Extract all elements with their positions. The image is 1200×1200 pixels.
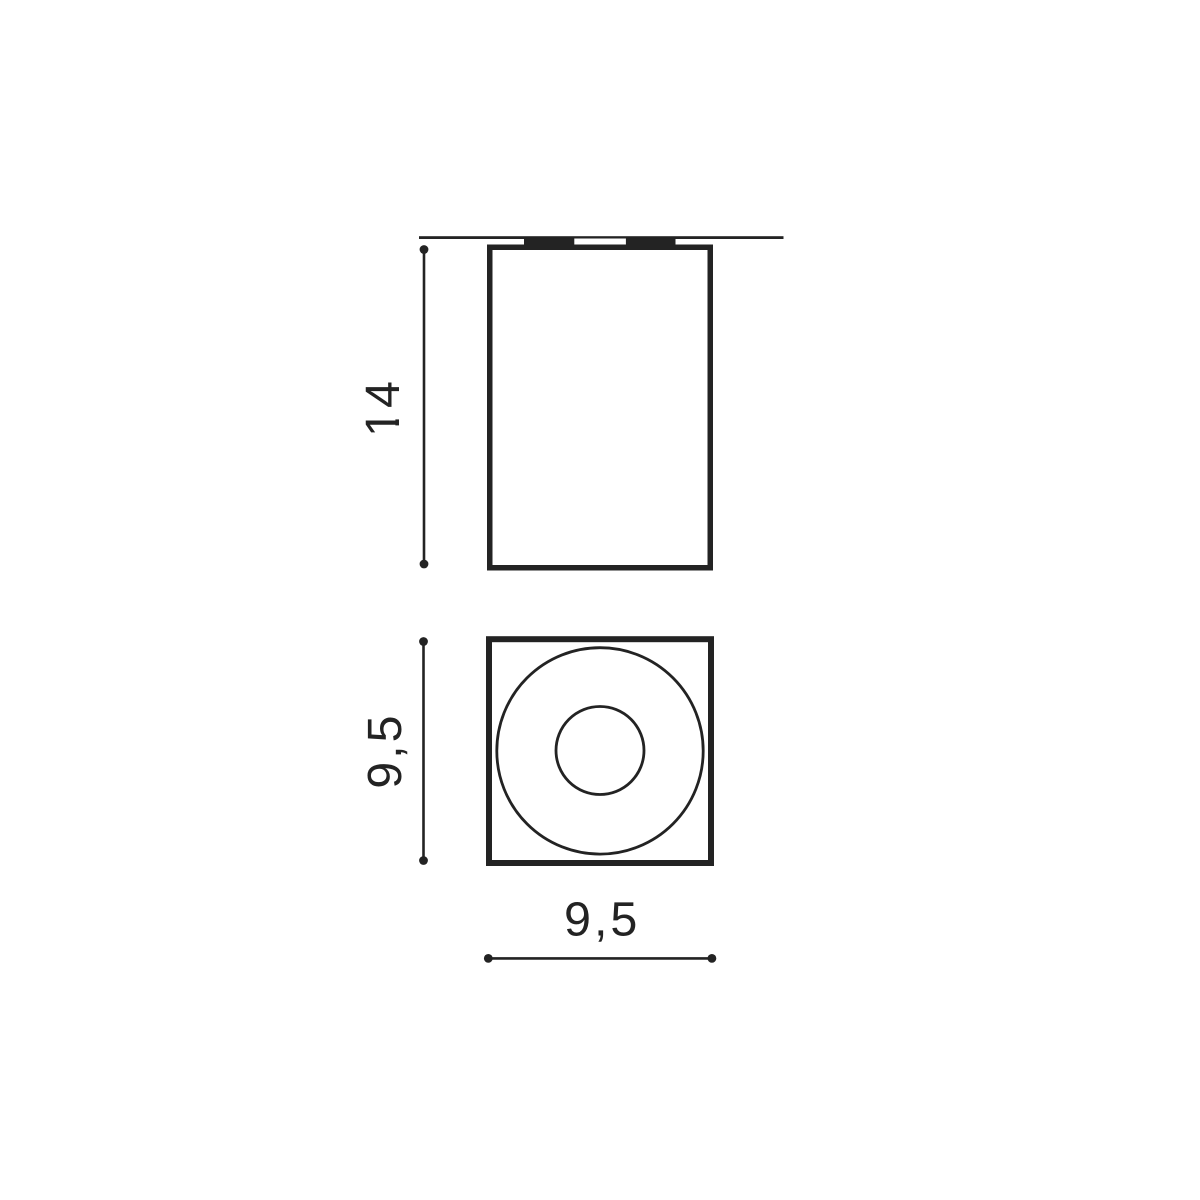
svg-text:9,5: 9,5 [564, 892, 640, 946]
svg-text:9,5: 9,5 [358, 712, 412, 788]
svg-text:14: 14 [356, 379, 410, 437]
